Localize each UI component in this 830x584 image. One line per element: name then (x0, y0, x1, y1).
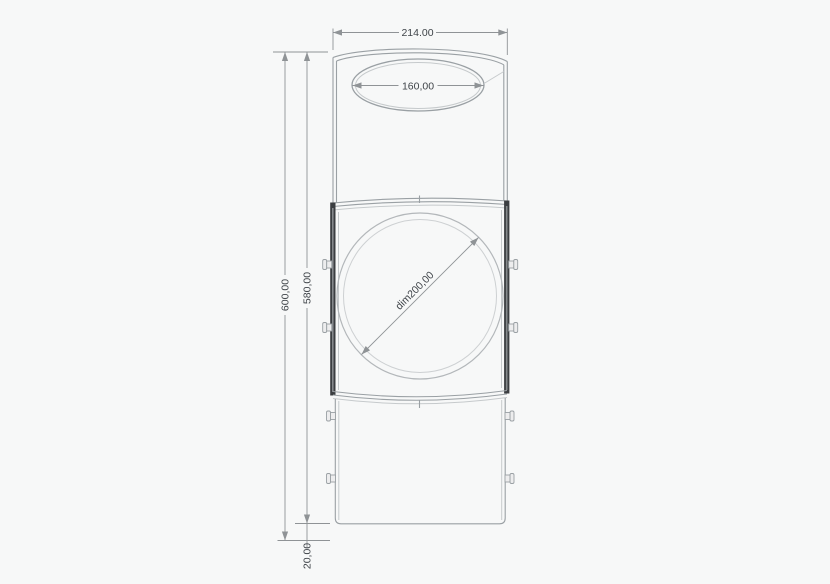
bolt (323, 323, 332, 333)
lower-outline (335, 398, 505, 524)
bottom-seam-band (333, 391, 507, 409)
dim-label-door-diameter: dim200,00 (393, 269, 436, 312)
dim-label-base-clearance: 20,00 (302, 543, 314, 569)
bin-upper-shell (333, 49, 507, 203)
dim-line (362, 238, 479, 355)
bolt (505, 411, 514, 421)
bolt (323, 260, 332, 270)
dim-door-diameter: dim200,00 (362, 238, 479, 355)
bolt (509, 323, 518, 333)
bolt (327, 474, 336, 484)
dim-overall-width: 214.00 (333, 26, 507, 55)
dim-label-overall-width: 214.00 (401, 27, 433, 39)
dim-label-body-height: 580,00 (302, 272, 314, 304)
dim-label-total-height: 600,00 (280, 279, 292, 311)
technical-drawing-canvas: 214.00 160,00 600,00 580,00 20,00 (0, 0, 830, 584)
drawing-page: 214.00 160,00 600,00 580,00 20,00 (0, 0, 830, 584)
seam-arc (333, 391, 507, 397)
top-seam-band (333, 196, 507, 211)
bolt (327, 411, 336, 421)
seam-arc (333, 205, 507, 210)
dim-label-opening-width: 160,00 (402, 81, 434, 93)
lower-body (335, 398, 505, 524)
seam-arc (333, 202, 507, 207)
door-frame (330, 201, 509, 396)
bolt (509, 260, 518, 270)
opening-edge-line (484, 72, 504, 84)
dim-heights: 600,00 580,00 20,00 (273, 52, 330, 569)
dim-opening-width: 160,00 (353, 80, 484, 93)
bolt (505, 474, 514, 484)
